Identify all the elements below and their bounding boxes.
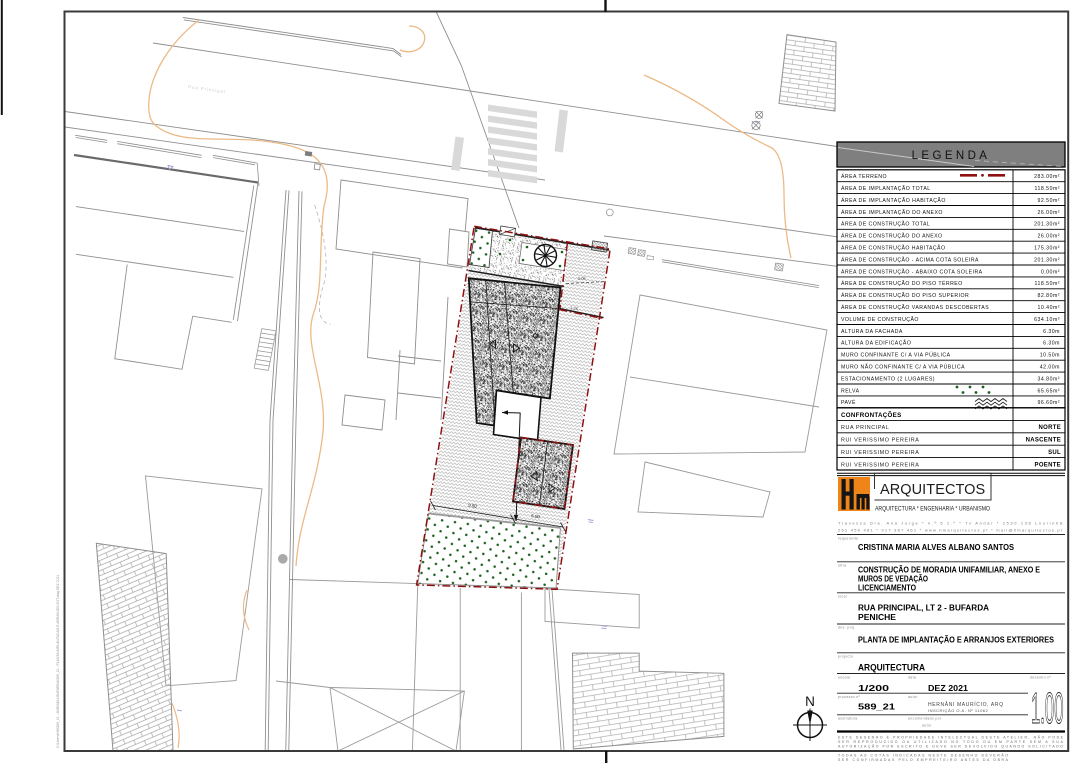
svg-text:ARQUITECTURA * ENGENHARIA * UR: ARQUITECTURA * ENGENHARIA * URBANISMO [875,506,990,513]
svg-text:118.50m²: 118.50m² [1034,281,1060,287]
svg-text:5.06: 5.06 [578,276,587,281]
svg-text:ESTACIONAMENTO (2 LUGARES): ESTACIONAMENTO (2 LUGARES) [841,376,935,382]
svg-text:local: local [838,595,847,599]
svg-text:26.00m²: 26.00m² [1037,234,1060,240]
svg-text:ÁREA DE CONSTRUÇÃO VARANDAS DE: ÁREA DE CONSTRUÇÃO VARANDAS DESCOBERTAS [841,304,989,311]
svg-text:ÁREA DE CONSTRUÇÃO DO PISO TÉR: ÁREA DE CONSTRUÇÃO DO PISO TÉRREO [841,280,963,287]
svg-text:PLANTA DE IMPLANTAÇÃO E ARRANJ: PLANTA DE IMPLANTAÇÃO E ARRANJOS EXTERIO… [858,635,1054,645]
svg-text:des. proj.: des. proj. [838,626,856,630]
svg-text:RUA PRINCIPAL, LT 2 - BUFARDA: RUA PRINCIPAL, LT 2 - BUFARDA [858,603,989,613]
svg-text:ÁREA DE CONSTRUÇÃO TOTAL: ÁREA DE CONSTRUÇÃO TOTAL [841,221,930,228]
svg-text:SER CONFIRMADAS PELO EMPREITEI: SER CONFIRMADAS PELO EMPREITEIRO ANTES D… [838,758,1009,762]
svg-text:DEZ 2021: DEZ 2021 [928,684,968,693]
svg-text:201.30m²: 201.30m² [1034,257,1060,263]
svg-text:ÁREA DE CONSTRUÇÃO - ACIMA COT: ÁREA DE CONSTRUÇÃO - ACIMA COTA SOLEIRA [841,256,979,263]
svg-text:NASCENTE: NASCENTE [1026,438,1061,444]
svg-text:118.50m²: 118.50m² [1034,186,1060,192]
svg-text:ÁREA DE CONSTRUÇÃO - ABAIXO CO: ÁREA DE CONSTRUÇÃO - ABAIXO COTA SOLEIRA [841,268,983,275]
svg-text:HERNÂNI MAURÍCIO, ARQ: HERNÂNI MAURÍCIO, ARQ [928,701,1003,708]
svg-text:65.65m²: 65.65m² [1037,388,1060,394]
svg-text:42.00m: 42.00m [1040,365,1060,371]
svg-text:283.00m²: 283.00m² [1034,174,1060,180]
svg-text:desenho nº: desenho nº [1030,676,1051,680]
svg-text:RUI VERISSIMO PEREIRA: RUI VERISSIMO PEREIRA [841,450,920,456]
svg-text:MURO CONFINANTE C/ A VIA PÚBLI: MURO CONFINANTE C/ A VIA PÚBLICA [841,352,951,359]
svg-text:175.30m²: 175.30m² [1034,246,1060,252]
svg-text:261 459 481 * 917 367 461 * ww: 261 459 481 * 917 367 461 * www.hmarquit… [838,528,1063,533]
svg-text:Rua Principal: Rua Principal [188,84,226,94]
svg-text:C:\Users\HM\589_21 - MORADIA B: C:\Users\HM\589_21 - MORADIA BUFARDA\589… [56,575,60,748]
svg-text:VOLUME DE CONSTRUÇÃO: VOLUME DE CONSTRUÇÃO [841,316,919,323]
svg-text:processo nº: processo nº [838,695,861,699]
svg-text:589_21: 589_21 [858,703,896,712]
svg-text:6.30m: 6.30m [1043,329,1060,335]
svg-text:ÁREA DE IMPLANTAÇÃO DO ANEXO: ÁREA DE IMPLANTAÇÃO DO ANEXO [841,209,943,216]
svg-text:RUA PRINCIPAL: RUA PRINCIPAL [841,425,889,431]
svg-text:LICENCIAMENTO: LICENCIAMENTO [858,583,916,593]
svg-text:TODAS AS COTAS INDICADAS NESTE: TODAS AS COTAS INDICADAS NESTE DESENHO D… [838,753,1008,758]
svg-text:POENTE: POENTE [1035,462,1061,468]
svg-text:projecto: projecto [838,655,853,659]
svg-text:ARQUITECTURA: ARQUITECTURA [858,663,926,673]
svg-text:autor: autor [908,695,918,699]
svg-text:0.00m²: 0.00m² [1041,269,1060,275]
svg-text:RUI VERISSIMO PEREIRA: RUI VERISSIMO PEREIRA [841,438,920,444]
svg-text:ARQUITECTOS: ARQUITECTOS [880,482,986,498]
svg-text:Travessa Dra. Ana Jorge * n.º: Travessa Dra. Ana Jorge * n.º 5 1.º * Tv… [838,521,1063,526]
svg-text:1.00: 1.00 [1031,683,1063,733]
svg-text:MURO NÃO CONFINANTE C/ A VIA P: MURO NÃO CONFINANTE C/ A VIA PÚBLICA [841,364,965,371]
svg-text:SER REPRODUZIDO OU UTILIZADO N: SER REPRODUZIDO OU UTILIZADO NO TODO OU … [838,740,1064,744]
svg-text:10.50m: 10.50m [1040,353,1060,359]
svg-text:634.10m³: 634.10m³ [1034,317,1060,323]
svg-text:data: data [908,676,916,680]
svg-text:ALTURA DA FACHADA: ALTURA DA FACHADA [841,329,903,335]
svg-text:92.50m²: 92.50m² [1037,198,1060,204]
svg-text:assinatura: assinatura [838,717,858,721]
svg-text:CONFRONTAÇÕES: CONFRONTAÇÕES [841,412,902,419]
svg-text:escala: escala [838,676,850,680]
svg-text:PAVÉ: PAVÉ [841,399,856,406]
svg-text:6.30m: 6.30m [1043,341,1060,347]
svg-text:ÁREA DE CONSTRUÇÃO DO ANEXO: ÁREA DE CONSTRUÇÃO DO ANEXO [841,233,943,240]
svg-text:10.40m²: 10.40m² [1037,305,1060,311]
svg-text:NORTE: NORTE [1039,425,1062,431]
svg-text:N: N [805,694,815,709]
svg-text:ÁREA DE CONSTRUÇÃO HABITAÇÃO: ÁREA DE CONSTRUÇÃO HABITAÇÃO [841,245,945,252]
svg-text:requerente: requerente [838,537,858,541]
svg-text:ÁREA TERRENO: ÁREA TERRENO [841,173,887,180]
svg-text:82.80m²: 82.80m² [1037,293,1060,299]
svg-text:RUI VERISSIMO PEREIRA: RUI VERISSIMO PEREIRA [841,462,920,468]
svg-text:26.00m²: 26.00m² [1037,210,1060,216]
svg-text:34.80m²: 34.80m² [1037,376,1060,382]
svg-text:1/200: 1/200 [858,684,890,693]
svg-text:ÁREA DE IMPLANTAÇÃO TOTAL: ÁREA DE IMPLANTAÇÃO TOTAL [841,185,931,192]
svg-text:obra: obra [838,564,846,568]
svg-text:INSCRIÇÃO O.A. Nº 11062: INSCRIÇÃO O.A. Nº 11062 [928,708,989,713]
svg-text:201.30m²: 201.30m² [1034,222,1060,228]
svg-text:LEGENDA: LEGENDA [912,150,991,162]
svg-text:RELVA: RELVA [841,388,860,394]
svg-text:ALTURA DA EDIFICAÇÃO: ALTURA DA EDIFICAÇÃO [841,340,911,347]
svg-text:AUTORIZAÇÃO POR ESCRITO E DEVE: AUTORIZAÇÃO POR ESCRITO E DEVE SER DEVOL… [838,744,1063,749]
svg-text:PENICHE: PENICHE [858,612,896,622]
svg-text:encomendado por: encomendado por [908,717,942,721]
svg-text:SUL: SUL [1048,450,1061,456]
svg-text:ÁREA DE IMPLANTAÇÃO HABITAÇÃO: ÁREA DE IMPLANTAÇÃO HABITAÇÃO [841,197,946,204]
svg-text:autor: autor [922,724,932,728]
svg-text:ÁREA DE CONSTRUÇÃO DO PISO SUP: ÁREA DE CONSTRUÇÃO DO PISO SUPERIOR [841,292,969,299]
svg-text:96.60m²: 96.60m² [1037,400,1060,406]
svg-text:CRISTINA MARIA ALVES ALBANO SA: CRISTINA MARIA ALVES ALBANO SANTOS [858,542,1014,552]
